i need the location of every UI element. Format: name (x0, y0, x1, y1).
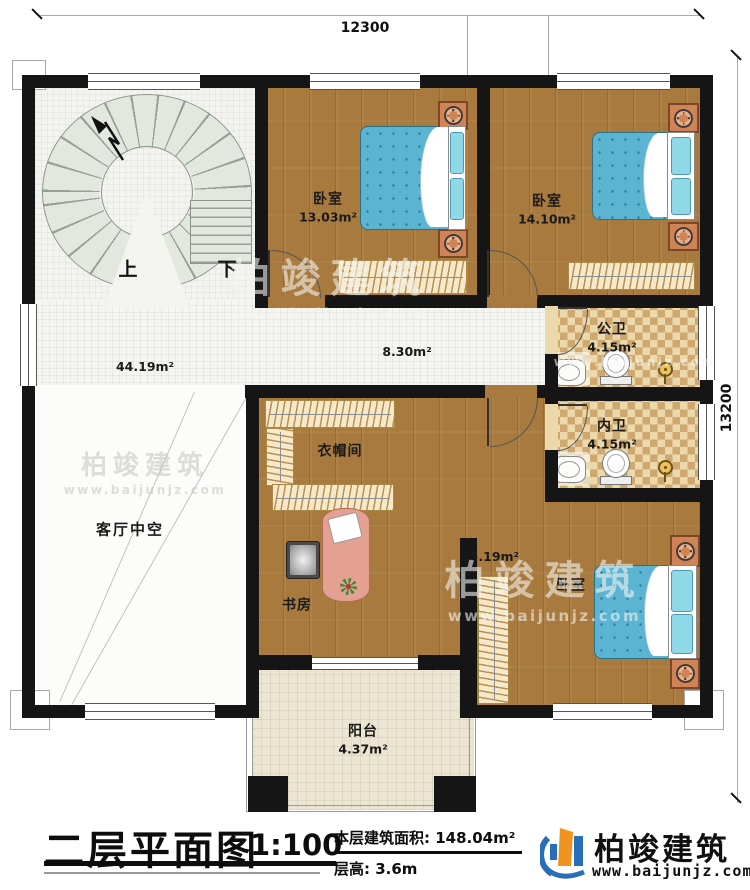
toilet (600, 449, 632, 485)
dimension-line-top (37, 15, 701, 16)
wardrobe (338, 260, 467, 294)
door-leaf (268, 250, 270, 297)
hall-area-label: 44.19m² (116, 359, 174, 375)
title-underline-thin (44, 872, 320, 874)
room-area: 14.10m² (518, 211, 576, 227)
room-name: 公卫 (597, 321, 627, 339)
floor-area-value: 148.04m² (435, 829, 515, 847)
bedroom1-label: 卧室 13.03m² (299, 191, 357, 224)
room-area: 4.15m² (587, 339, 636, 355)
pillow (671, 614, 693, 654)
wall (545, 488, 713, 502)
nightstand (668, 222, 699, 251)
window (85, 703, 215, 720)
toilet-bowl (602, 449, 630, 478)
door-leaf (487, 250, 489, 297)
wardrobe (568, 262, 695, 290)
wall (22, 75, 35, 718)
floor-height-label: 层高: (334, 860, 370, 878)
pillow (671, 178, 691, 215)
brand-logo-icon (540, 820, 590, 882)
room-name: 卧室 (556, 577, 586, 595)
stair-direction-arrow (55, 108, 135, 168)
room-area: 13.03m² (299, 209, 357, 225)
pillow (671, 137, 691, 175)
nightstand-lamp-icon (674, 109, 693, 128)
cloakroom-label: 衣帽间 (318, 443, 363, 461)
wall (418, 655, 477, 670)
brand-website: www.baijunjz.com (592, 862, 750, 880)
living-void-label: 客厅中空 (96, 521, 164, 540)
room-area: 44.19m² (116, 359, 174, 375)
study-label: 书房 (282, 597, 312, 615)
plan-scale: 1:100 (250, 828, 342, 862)
floor-area-row: 本层建筑面积: 148.04m² (334, 827, 515, 848)
dimension-height: 13200 (719, 378, 735, 438)
room-name: 书房 (282, 597, 312, 615)
cloakroom-rack (266, 428, 294, 486)
balcony-slider-door (312, 657, 418, 670)
wall (258, 655, 312, 670)
window (698, 306, 715, 380)
floor-area-label: 本层建筑面积: (334, 829, 430, 847)
window (557, 73, 670, 90)
balcony-label: 阳台 4.37m² (338, 723, 387, 756)
room-area: 4.15m² (587, 436, 636, 452)
door-opening (545, 404, 558, 450)
window (553, 703, 652, 720)
door-leaf (487, 398, 489, 446)
corridor-area-label: 8.30m² (382, 344, 431, 360)
public-bath-label: 公卫 4.15m² (587, 321, 636, 354)
shower-head (658, 460, 673, 475)
bedroom2-label: 卧室 14.10m² (518, 193, 576, 226)
door-opening (545, 306, 558, 354)
wall (248, 776, 288, 812)
master-bedroom-area: 35.19m² (461, 549, 519, 565)
stairs-up-label: 上 (118, 255, 137, 282)
shower-head (658, 362, 673, 377)
info-divider (334, 851, 522, 854)
plant (340, 578, 357, 595)
stairs-down-label: 下 (217, 255, 236, 282)
window (20, 304, 37, 386)
nightstand (670, 658, 700, 689)
room-name: 阳台 (348, 723, 378, 741)
nightstand (670, 535, 700, 567)
room-area: 35.19m² (461, 549, 519, 565)
nightstand (438, 229, 468, 258)
dimension-line-right (737, 55, 738, 803)
nightstand-lamp-icon (676, 664, 695, 683)
pillow (450, 132, 464, 174)
nightstand-lamp-icon (444, 106, 463, 125)
wall (434, 776, 476, 812)
floor-height-value: 3.6m (375, 860, 417, 878)
wall (255, 88, 268, 303)
room-name: 内卫 (597, 418, 627, 436)
master-bedroom-label: 卧室 (556, 577, 586, 595)
bed-sheet (643, 133, 668, 217)
pillow (671, 570, 693, 612)
floor-height-row: 层高: 3.6m (334, 858, 417, 879)
nightstand-lamp-icon (676, 542, 695, 561)
bed-sheet (644, 566, 669, 656)
pillow (450, 178, 464, 220)
nightstand-lamp-icon (674, 227, 693, 246)
dimension-tick (730, 49, 741, 60)
cloakroom-rack (272, 484, 394, 511)
door-opening (485, 385, 537, 398)
computer-monitor (286, 541, 320, 579)
flue-box (467, 15, 549, 77)
inner-bath-label: 内卫 4.15m² (587, 418, 636, 451)
nightstand (668, 103, 699, 133)
window (88, 73, 200, 90)
room-name: 卧室 (313, 191, 343, 209)
floor-plan-canvas: 12300 13200 上 下 (0, 0, 750, 890)
plan-title: 二层平面图 (44, 818, 259, 876)
room-name: 客厅中空 (96, 521, 164, 540)
room-area: 8.30m² (382, 344, 431, 360)
room-name: 卧室 (532, 193, 562, 211)
wall (545, 387, 713, 401)
dimension-tick (730, 792, 741, 803)
dimension-width: 12300 (330, 20, 400, 36)
window (698, 404, 715, 480)
wardrobe (478, 576, 509, 704)
hall-floor (35, 300, 545, 390)
nightstand-lamp-icon (444, 234, 463, 253)
cloakroom-rack (265, 400, 395, 428)
room-area: 4.37m² (338, 741, 387, 757)
room-name: 衣帽间 (318, 443, 363, 461)
window (310, 73, 420, 90)
